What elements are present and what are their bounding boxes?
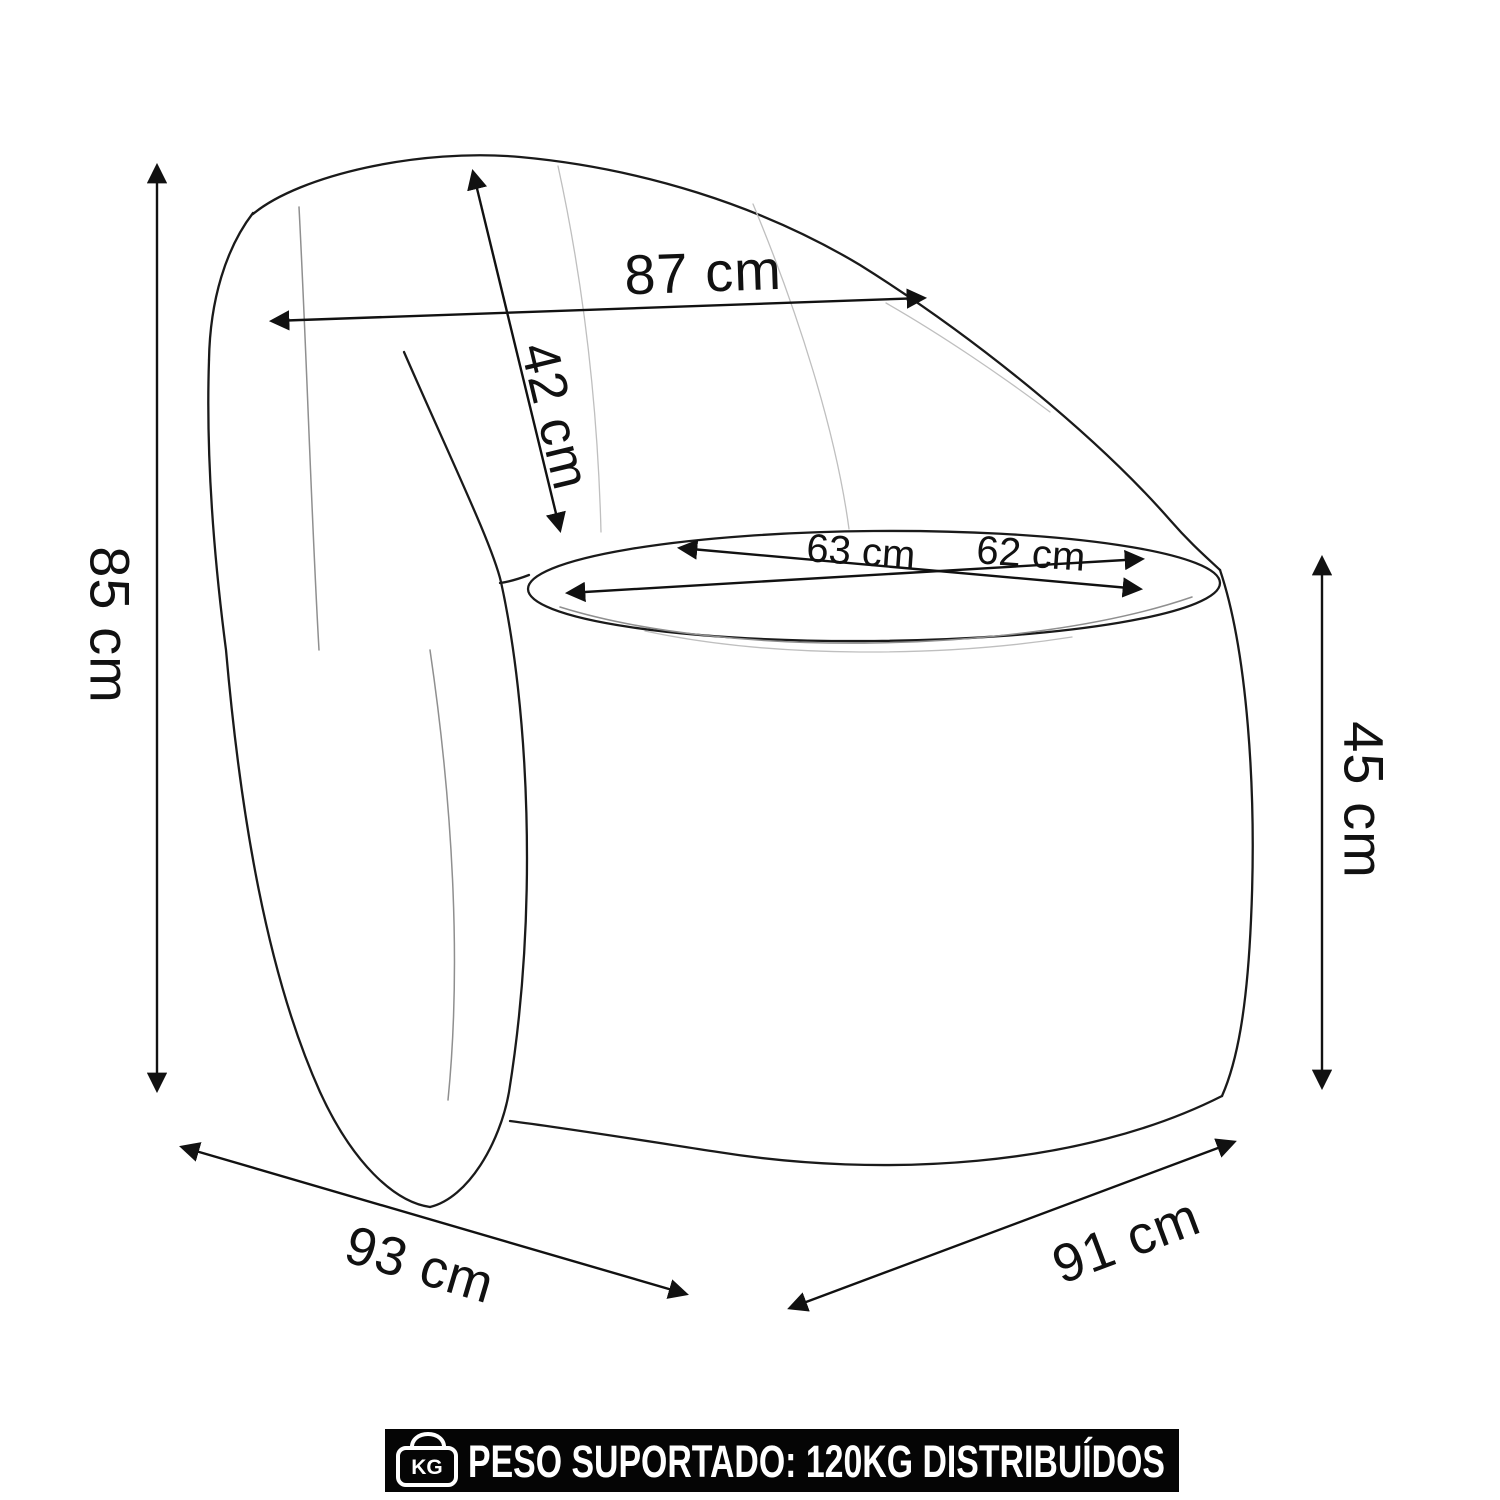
dim-label-seat-height: 45 cm xyxy=(1332,721,1395,879)
base-right-edge xyxy=(1220,570,1253,1096)
dim-back-width: 87 cm xyxy=(272,238,924,321)
dim-line-back-width xyxy=(272,298,924,321)
dim-total-width: 91 cm xyxy=(790,1142,1234,1308)
base-bottom-edge xyxy=(510,1096,1222,1165)
dim-total-height: 85 cm xyxy=(78,166,157,1090)
seat-front-lip-line xyxy=(560,597,1192,643)
seat-armrest-junction xyxy=(500,575,529,583)
armrest-inner-edge xyxy=(404,352,527,1207)
armchair-drawing xyxy=(208,155,1252,1207)
dim-label-seat-width: 63 cm xyxy=(805,526,917,577)
dim-label-backrest-height: 42 cm xyxy=(509,337,601,496)
armrest-middle-seam xyxy=(430,650,454,1100)
backrest-left-edge xyxy=(209,213,253,360)
weight-icon-label: KG xyxy=(411,1456,443,1479)
dim-label-seat-depth: 62 cm xyxy=(975,528,1087,579)
backrest-top-edge xyxy=(253,155,1220,570)
dim-backrest-height: 42 cm xyxy=(473,172,601,530)
armchair-dimension-diagram: 85 cm 87 cm 42 cm 63 cm 62 cm xyxy=(0,0,1500,1500)
dim-label-total-depth: 93 cm xyxy=(338,1215,501,1316)
dimension-annotations: 85 cm 87 cm 42 cm 63 cm 62 cm xyxy=(78,166,1395,1315)
backrest-seam-left xyxy=(299,207,319,650)
dim-label-back-width: 87 cm xyxy=(623,238,783,306)
backrest-seam-right xyxy=(886,303,1050,412)
dimension-diagram-page: 85 cm 87 cm 42 cm 63 cm 62 cm xyxy=(0,0,1500,1500)
armrest-outer-edge xyxy=(208,360,430,1207)
banner-text: PESO SUPORTADO: 120KG DISTRIBUÍDOS xyxy=(468,1436,1165,1487)
dim-label-total-height: 85 cm xyxy=(78,546,141,704)
dim-seat-height: 45 cm xyxy=(1322,558,1395,1087)
dim-total-depth: 93 cm xyxy=(182,1147,686,1315)
weight-capacity-banner: KG PESO SUPORTADO: 120KG DISTRIBUÍDOS xyxy=(385,1429,1179,1492)
